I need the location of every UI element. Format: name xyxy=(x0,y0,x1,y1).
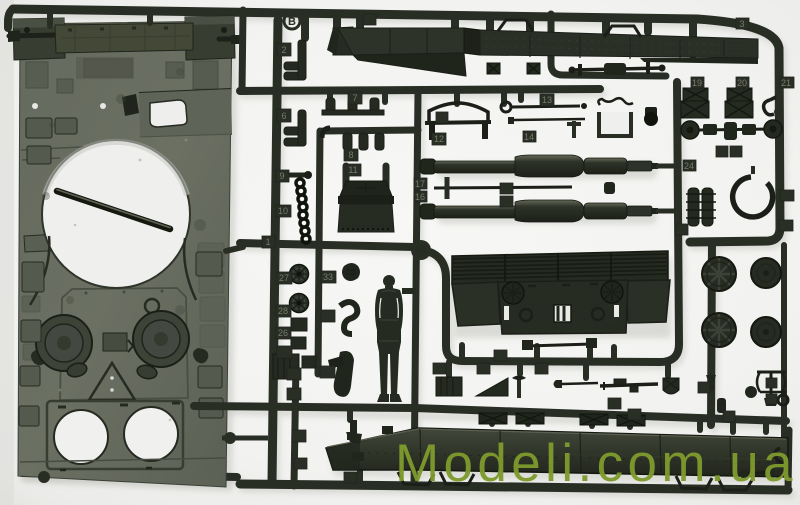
svg-text:7: 7 xyxy=(352,93,357,103)
svg-text:28: 28 xyxy=(278,306,288,316)
svg-text:8: 8 xyxy=(348,150,353,160)
svg-text:6: 6 xyxy=(281,111,286,121)
svg-text:B: B xyxy=(288,16,296,28)
svg-text:11: 11 xyxy=(348,165,357,175)
svg-text:3: 3 xyxy=(739,19,744,29)
svg-text:19: 19 xyxy=(692,78,702,88)
svg-text:20: 20 xyxy=(737,78,747,88)
svg-text:Modeli.com.ua: Modeli.com.ua xyxy=(395,434,797,493)
svg-text:27: 27 xyxy=(279,273,289,283)
svg-text:21: 21 xyxy=(781,78,791,88)
svg-text:33: 33 xyxy=(323,272,333,282)
svg-text:24: 24 xyxy=(684,161,694,171)
svg-text:13: 13 xyxy=(542,95,552,105)
svg-text:16: 16 xyxy=(415,192,425,202)
svg-text:2: 2 xyxy=(281,45,286,55)
svg-text:12: 12 xyxy=(434,134,444,144)
svg-text:26: 26 xyxy=(278,328,288,338)
svg-text:9: 9 xyxy=(279,171,284,181)
svg-text:14: 14 xyxy=(524,132,534,142)
svg-text:1: 1 xyxy=(265,237,270,247)
svg-text:17: 17 xyxy=(415,179,425,189)
svg-text:10: 10 xyxy=(278,206,288,216)
